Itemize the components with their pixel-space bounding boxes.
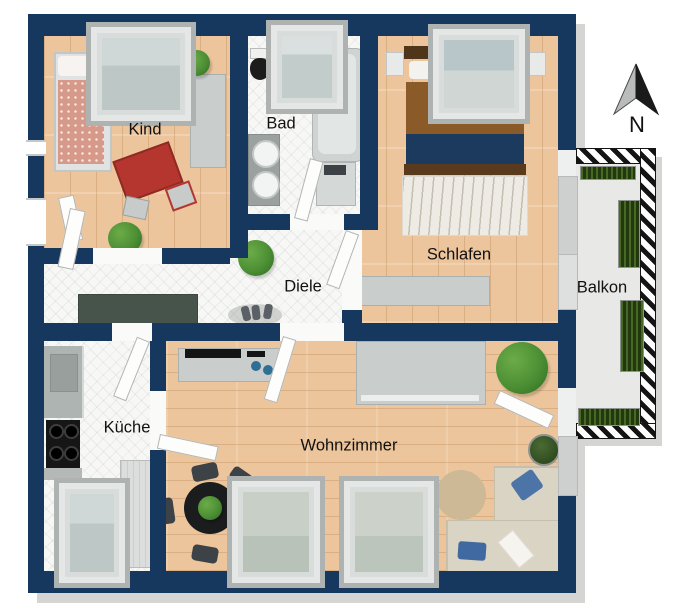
wall-kind-bottom-right bbox=[162, 248, 230, 264]
schlafen-balcony-door-leaf bbox=[558, 176, 578, 256]
bed-blanket-navy bbox=[406, 134, 524, 164]
sink-1 bbox=[252, 140, 280, 168]
wohnzimmer-balcony-opening bbox=[558, 388, 576, 436]
nightstand-right bbox=[528, 52, 546, 76]
floor-plan: Kind Bad Schlafen Diele Küche Wohnzimmer… bbox=[0, 0, 673, 607]
north-arrow-label: N bbox=[629, 112, 645, 137]
living-plant-small bbox=[528, 434, 560, 466]
washing-machine-panel bbox=[324, 165, 346, 175]
wall-kueche-wohnzimmer-upper bbox=[150, 341, 166, 391]
bed-foot-rail bbox=[404, 164, 526, 175]
round-rug bbox=[436, 470, 486, 520]
sideboard-decor-black-1 bbox=[185, 349, 241, 358]
room-label-schlafen: Schlafen bbox=[427, 246, 491, 265]
schlafen-window bbox=[428, 24, 530, 124]
shower bbox=[266, 20, 348, 114]
nightstand-left bbox=[386, 52, 404, 76]
sideboard-decor-blue-dot-1 bbox=[251, 361, 261, 371]
stove bbox=[46, 420, 80, 468]
burner-4 bbox=[64, 446, 79, 461]
balcony-grass-strip bbox=[578, 408, 640, 426]
shoes-2 bbox=[251, 305, 261, 321]
north-arrow-right-wing bbox=[636, 64, 658, 114]
north-arrow-left-wing bbox=[614, 64, 636, 114]
kueche-door-opening bbox=[112, 323, 152, 341]
balcony-planter-right-2 bbox=[620, 300, 644, 372]
burner-3 bbox=[49, 446, 64, 461]
kind-window bbox=[86, 22, 196, 126]
room-label-kueche: Küche bbox=[104, 419, 151, 438]
schlafen-window-glass bbox=[444, 40, 514, 108]
wohnzimmer-window-right-glass bbox=[355, 492, 423, 572]
kitchen-sink bbox=[50, 354, 78, 392]
sofa-pillow-blue-2 bbox=[457, 541, 486, 561]
room-label-wohnzimmer: Wohnzimmer bbox=[301, 437, 398, 456]
balcony-planter-right-1 bbox=[618, 200, 640, 268]
north-arrow: N bbox=[612, 58, 662, 138]
sink-2 bbox=[252, 171, 280, 199]
schlafen-balcony-door-leaf-2 bbox=[558, 254, 578, 310]
living-desk bbox=[356, 341, 486, 405]
burner-2 bbox=[64, 424, 79, 439]
entrance-opening bbox=[26, 198, 46, 246]
burner-1 bbox=[49, 424, 64, 439]
wohnzimmer-window-left-glass bbox=[243, 492, 309, 572]
room-label-balkon: Balkon bbox=[577, 279, 627, 298]
left-wall-window bbox=[26, 140, 46, 156]
balcony-planter-top bbox=[580, 166, 636, 180]
living-plant-bush bbox=[496, 342, 548, 394]
desk-front-edge bbox=[361, 395, 479, 401]
washbasin-vanity bbox=[248, 134, 280, 206]
kueche-window-glass bbox=[70, 494, 114, 572]
washing-machine bbox=[316, 162, 356, 206]
room-label-bad: Bad bbox=[266, 115, 295, 134]
dining-table-plant bbox=[198, 496, 222, 520]
wohnzimmer-window-left bbox=[227, 476, 325, 588]
living-sideboard bbox=[178, 348, 280, 382]
schlafen-dresser bbox=[346, 276, 490, 306]
room-label-kind: Kind bbox=[128, 121, 161, 140]
kitchen-counter bbox=[44, 346, 84, 418]
kind-door-opening bbox=[93, 248, 162, 264]
wall-kueche-wohnzimmer-lower bbox=[150, 450, 166, 571]
room-label-diele: Diele bbox=[284, 278, 322, 297]
schlafen-wavy-rug bbox=[402, 176, 528, 236]
kueche-window bbox=[54, 478, 130, 588]
wall-bad-schlafen bbox=[360, 36, 378, 230]
wohnzimmer-balcony-door-leaf-2 bbox=[558, 436, 578, 496]
wall-outer-left bbox=[28, 14, 44, 593]
wohnzimmer-window-right bbox=[339, 476, 439, 588]
kind-window-glass bbox=[102, 38, 180, 110]
sideboard-decor-black-2 bbox=[247, 351, 265, 357]
balcony-railing-right bbox=[640, 148, 656, 439]
wall-bad-bottom bbox=[230, 214, 290, 230]
shower-glass bbox=[282, 36, 332, 98]
